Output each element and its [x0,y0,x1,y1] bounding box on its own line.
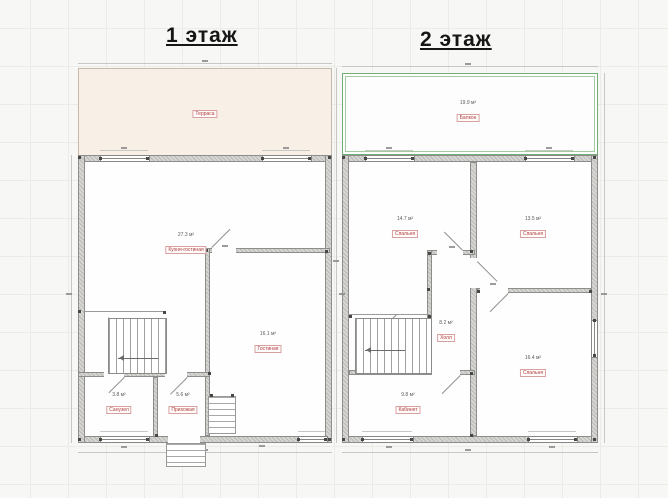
floor2-title: 2 этаж [420,28,492,52]
staircase[interactable] [108,318,167,374]
dimension-line [528,431,576,432]
dimension-tick [428,252,431,255]
dimension-tick [261,157,264,160]
dimension-tick [146,438,149,441]
dimension-line [336,68,337,443]
door-opening [168,436,200,443]
room-label-wc[interactable]: 3.8 м² Санузел [106,392,131,416]
wall [78,155,85,443]
dimension-tick [146,157,149,160]
dimension-line [362,431,412,432]
dimension-text-mark [283,147,289,149]
dimension-text-mark [465,449,471,451]
terrace-label[interactable]: Терраса [192,102,217,120]
wall [427,250,432,318]
dimension-tick [328,156,331,159]
dimension-text-mark [549,446,555,448]
dimension-tick [593,354,596,357]
dimension-tick [308,157,311,160]
dimension-text-mark [386,147,392,149]
dimension-line [298,431,326,432]
dimension-line [100,150,148,151]
window [525,155,575,162]
dimension-line [262,150,310,151]
dimension-text-mark [546,147,552,149]
wall [470,162,477,436]
dimension-tick [349,315,352,318]
dimension-tick [328,438,331,441]
entry-steps [166,443,206,467]
dimension-tick [410,438,413,441]
room-label-kitchen-living[interactable]: 27.3 м² Кухня-гостиная [165,232,206,256]
dimension-line [78,63,332,64]
stair-direction-arrow [118,358,158,359]
room-label-bedroom1[interactable]: 14.7 м² Спальня [392,216,418,240]
room-label-office[interactable]: 9.8 м² Кабинет [395,392,420,416]
stair-direction-arrow [365,350,405,351]
dimension-tick [231,394,234,397]
door-opening [480,288,508,293]
dimension-line [604,73,605,443]
dimension-tick [99,157,102,160]
window [262,155,312,162]
dimension-text-mark [490,283,496,285]
wall [153,377,158,437]
dimension-text-mark [333,260,339,262]
dimension-tick [325,250,328,253]
room-label-living[interactable]: 16.1 м² Гостиная [255,331,282,355]
floorplan-canvas: 1 этаж 2 этаж Терраса 27.3 м² Кухня-гост… [0,0,668,498]
dimension-text-mark [449,246,455,248]
dimension-line [342,66,598,67]
dimension-text-mark [601,293,607,295]
door-opening [165,372,187,377]
balcony-label[interactable]: 19.9 м² Балкон [457,100,480,124]
dimension-line [71,155,72,443]
dimension-tick [428,315,431,318]
dimension-tick [411,157,414,160]
entry-steps [208,396,236,434]
dimension-tick [99,438,102,441]
door-opening [437,250,463,255]
dimension-text-mark [121,147,127,149]
door-opening [212,248,236,253]
dimension-tick [78,438,81,441]
dimension-tick [78,156,81,159]
dimension-tick [470,434,473,437]
room-label-hallway[interactable]: 5.6 м² Прихожая [168,392,197,416]
dimension-tick [571,157,574,160]
dimension-tick [324,438,327,441]
dimension-tick [524,157,527,160]
dimension-line [342,452,598,453]
dimension-tick [477,290,480,293]
room-label-hall[interactable]: 8.2 м² Холл [437,320,455,344]
floor1-title: 1 этаж [166,24,238,48]
dimension-tick [527,438,530,441]
dimension-tick [470,372,473,375]
dimension-text-mark [202,60,208,62]
window [528,436,578,443]
room-label-bedroom3[interactable]: 16.4 м² Спальня [520,355,546,379]
wall-line [349,314,430,315]
wall-line [85,311,165,312]
wall [325,155,332,443]
door-opening [470,258,477,288]
dimension-tick [163,311,166,314]
dimension-tick [155,434,158,437]
dimension-line [525,150,573,151]
dimension-text-mark [386,446,392,448]
dimension-tick [78,310,81,313]
dimension-text-mark [66,293,72,295]
dimension-line [365,150,413,151]
dimension-tick [364,157,367,160]
wall [342,155,349,443]
dimension-text-mark [121,446,127,448]
staircase[interactable] [355,318,432,374]
window [362,436,414,443]
dimension-text-mark [259,445,265,447]
dimension-tick [342,156,345,159]
dimension-tick [589,290,592,293]
window [365,155,415,162]
room-label-bedroom2[interactable]: 13.5 м² Спальня [520,216,546,240]
dimension-tick [208,372,211,375]
dimension-text-mark [465,63,471,65]
dimension-tick [593,319,596,322]
dimension-text-mark [222,245,228,247]
dimension-tick [210,394,213,397]
dimension-text-mark [339,293,345,295]
window [100,436,150,443]
dimension-tick [297,438,300,441]
door-opening [432,370,460,375]
dimension-tick [361,438,364,441]
dimension-tick [470,250,473,253]
window [100,155,150,162]
wall [591,155,598,443]
dimension-tick [593,438,596,441]
dimension-tick [342,438,345,441]
window [591,320,598,358]
dimension-tick [593,156,596,159]
dimension-tick [427,288,430,291]
dimension-line [100,431,148,432]
dimension-tick [574,438,577,441]
